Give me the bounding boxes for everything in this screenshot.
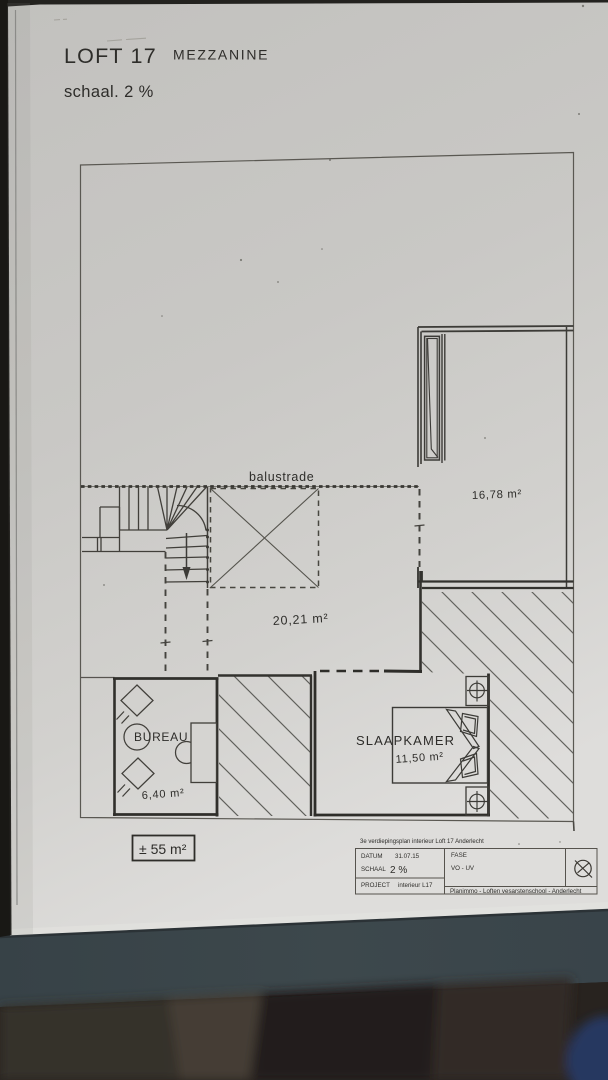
svg-text:schaal. 2 %: schaal. 2 % bbox=[64, 83, 154, 101]
svg-text:balustrade: balustrade bbox=[249, 470, 314, 484]
svg-text:31.07.15: 31.07.15 bbox=[395, 853, 420, 860]
svg-text:16,78 m²: 16,78 m² bbox=[472, 488, 523, 502]
svg-text:LOFT 17: LOFT 17 bbox=[64, 44, 157, 68]
svg-text:Planimmo - Loften vesarstensch: Planimmo - Loften vesarstenschool - Ande… bbox=[450, 888, 582, 895]
svg-text:± 55 m²: ± 55 m² bbox=[139, 841, 187, 857]
svg-text:SCHAAL: SCHAAL bbox=[361, 866, 386, 873]
svg-text:2 %: 2 % bbox=[390, 865, 407, 876]
svg-text:interieur L17: interieur L17 bbox=[398, 882, 433, 889]
svg-text:MEZZANINE: MEZZANINE bbox=[173, 47, 269, 63]
svg-text:FASE: FASE bbox=[451, 852, 467, 859]
svg-text:BUREAU: BUREAU bbox=[134, 730, 188, 744]
svg-text:3e verdiepingsplan interieur L: 3e verdiepingsplan interieur Loft 17 And… bbox=[360, 839, 484, 845]
svg-text:20,21 m²: 20,21 m² bbox=[272, 611, 328, 628]
svg-text:DATUM: DATUM bbox=[361, 853, 383, 860]
svg-text:PROJECT: PROJECT bbox=[361, 882, 390, 889]
svg-text:VO - UV: VO - UV bbox=[451, 865, 475, 872]
svg-text:SLAAPKAMER: SLAAPKAMER bbox=[356, 733, 455, 748]
